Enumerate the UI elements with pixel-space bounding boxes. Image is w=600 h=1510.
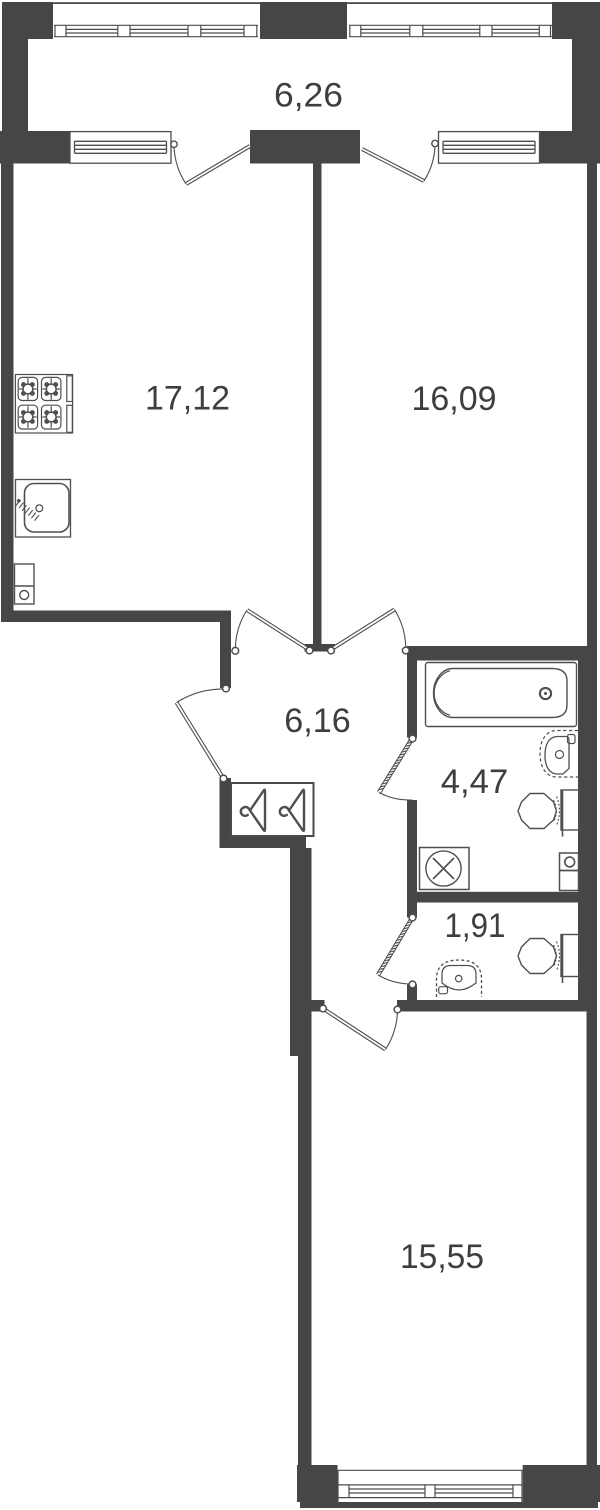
- svg-text:17,12: 17,12: [145, 380, 230, 418]
- svg-text:4,47: 4,47: [441, 763, 509, 801]
- svg-text:16,09: 16,09: [412, 380, 497, 418]
- svg-text:15,55: 15,55: [400, 1238, 484, 1276]
- svg-text:6,26: 6,26: [274, 76, 343, 114]
- svg-text:6,16: 6,16: [284, 702, 351, 740]
- svg-text:1,91: 1,91: [445, 907, 506, 945]
